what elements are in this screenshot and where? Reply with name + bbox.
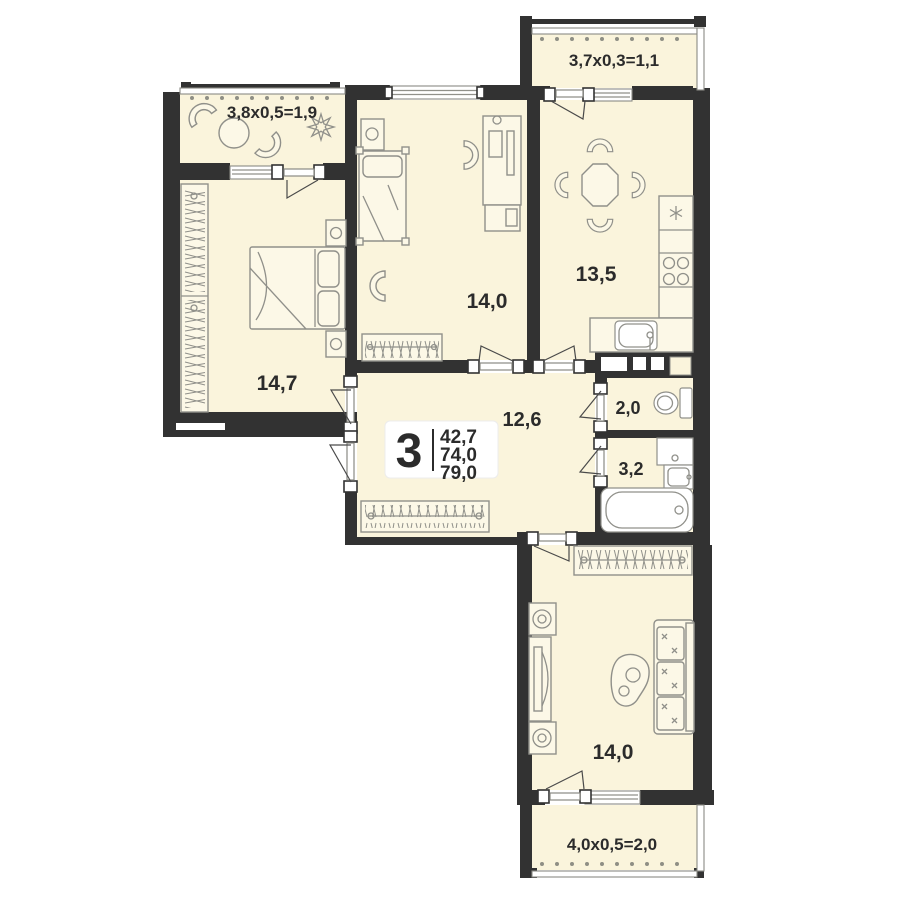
- label-balcony-tl: 3,8x0,5=1,9: [227, 103, 317, 122]
- nightstand: [361, 119, 384, 150]
- round-table: [219, 118, 249, 148]
- label-balcony-bottom: 4,0x0,5=2,0: [567, 835, 657, 854]
- furniture-hallway: [361, 501, 489, 532]
- label-bedroom-mid: 14,0: [467, 290, 508, 313]
- nightstand: [326, 331, 346, 357]
- window-living-to-balcony: [585, 791, 640, 804]
- unit-info-box: 3 42,7 74,0 79,0: [385, 421, 498, 484]
- label-balcony-tr: 3,7x0,3=1,1: [569, 51, 659, 70]
- label-kitchen: 13,5: [576, 263, 617, 286]
- glazing-top-left: [180, 88, 345, 94]
- dining-table: [582, 164, 618, 206]
- hall-wardrobe: [361, 501, 489, 532]
- speaker-icon: [529, 603, 556, 635]
- label-toilet: 2,0: [615, 398, 640, 418]
- label-bedroom-left: 14,7: [257, 372, 298, 395]
- floorplan-svg: 3,8x0,5=1,9 14,7 14,0 3,7x0,3=1,1 13,5 1…: [0, 0, 900, 900]
- unit-rooms-count: 3: [396, 425, 423, 478]
- washing-machine: [657, 438, 693, 465]
- glazing-bottom: [532, 871, 697, 877]
- single-bed: [356, 147, 409, 245]
- double-bed: [250, 247, 345, 329]
- bath-sink-icon: [664, 465, 693, 489]
- nightstand: [326, 220, 346, 246]
- sink-counter: [590, 318, 693, 352]
- sink-icon: [615, 321, 657, 350]
- window-bedroom-mid: [385, 86, 484, 99]
- unit-area-total: 79,0: [440, 463, 477, 484]
- speaker-icon: [529, 722, 556, 754]
- desk: [483, 116, 521, 231]
- wardrobe: [181, 184, 208, 412]
- door-entrance: [330, 431, 357, 492]
- label-bathroom: 3,2: [618, 459, 643, 479]
- floorplan-page: 3,8x0,5=1,9 14,7 14,0 3,7x0,3=1,1 13,5 1…: [0, 0, 900, 900]
- glazing-top-right: [532, 28, 697, 34]
- bathtub-icon: [601, 488, 693, 532]
- sofa: [654, 620, 694, 734]
- window-balcony-tl-to-bedroom: [230, 166, 278, 179]
- tv-console: [529, 637, 551, 721]
- label-living: 14,0: [593, 741, 634, 764]
- label-hallway: 12,6: [503, 409, 542, 431]
- radiator: [362, 334, 442, 361]
- living-wardrobe: [574, 546, 692, 575]
